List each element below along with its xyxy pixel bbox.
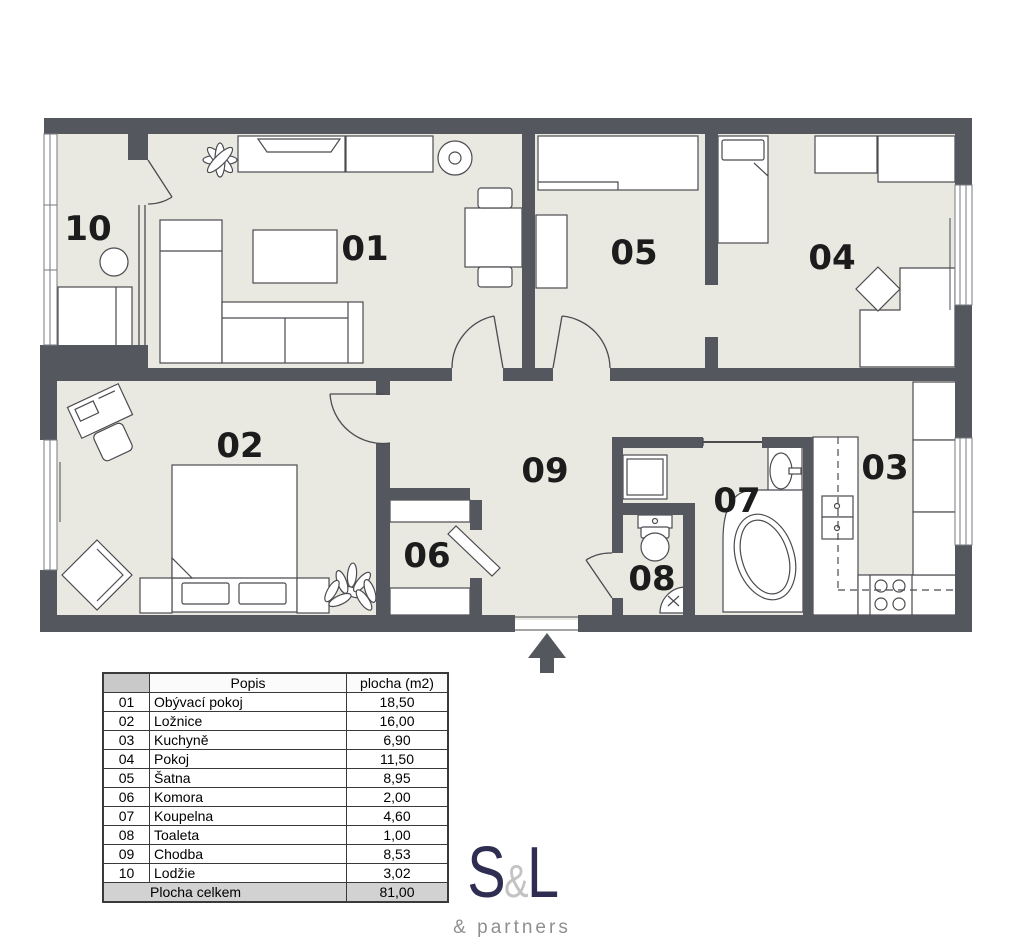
fridge-cabinet — [913, 382, 957, 440]
pillow — [239, 583, 286, 604]
window — [955, 185, 972, 305]
room-area: 2,00 — [347, 788, 448, 807]
nightstand — [140, 578, 172, 613]
room-label-08: 08 — [628, 559, 675, 599]
legend-row: 04 Pokoj 11,50 — [104, 750, 448, 769]
room-label-01: 01 — [341, 229, 388, 269]
room-name: Šatna — [150, 769, 347, 788]
room-name: Pokoj — [150, 750, 347, 769]
wardrobe — [536, 215, 567, 288]
legend-row: 03 Kuchyně 6,90 — [104, 731, 448, 750]
room-name: Obývací pokoj — [150, 693, 347, 712]
dining-table — [465, 208, 522, 267]
logo-tagline: & partners — [0, 917, 1024, 939]
pillow — [722, 140, 764, 160]
sofa — [222, 302, 363, 363]
logo-letter-s: S — [467, 833, 504, 913]
nightstand — [297, 578, 329, 613]
logo-letter-l: L — [527, 833, 557, 913]
room-label-09: 09 — [521, 451, 568, 491]
room-num: 06 — [104, 788, 150, 807]
legend-header-row: Popis plocha (m2) — [104, 674, 448, 693]
sofa-chaise — [160, 220, 222, 363]
legend-row: 06 Komora 2,00 — [104, 788, 448, 807]
room-num: 01 — [104, 693, 150, 712]
toilet-bowl — [641, 533, 669, 561]
legend-header-num — [104, 674, 150, 693]
room-num: 07 — [104, 807, 150, 826]
pillow — [182, 583, 229, 604]
chair — [478, 267, 512, 287]
room-num: 03 — [104, 731, 150, 750]
legend-header-plocha: plocha (m2) — [347, 674, 448, 693]
shelf — [878, 136, 955, 182]
room-label-05: 05 — [610, 233, 657, 273]
room-name: Koupelna — [150, 807, 347, 826]
room-num: 05 — [104, 769, 150, 788]
room-label-06: 06 — [403, 536, 450, 576]
stove — [870, 575, 912, 615]
window — [955, 438, 972, 545]
shelf — [390, 500, 470, 522]
legend-row: 07 Koupelna 4,60 — [104, 807, 448, 826]
loggia-table — [100, 248, 128, 276]
room-num: 04 — [104, 750, 150, 769]
company-logo: S&L & partners — [0, 838, 1024, 939]
legend-row: 01 Obývací pokoj 18,50 — [104, 693, 448, 712]
cabinet — [346, 136, 433, 172]
room-area: 16,00 — [347, 712, 448, 731]
legend-row: 05 Šatna 8,95 — [104, 769, 448, 788]
room-label-10: 10 — [64, 209, 111, 249]
room-label-02: 02 — [216, 426, 263, 466]
legend-header-popis: Popis — [150, 674, 347, 693]
floor-plan: 01 02 03 04 05 06 07 08 09 10 — [0, 0, 1024, 700]
logo-monogram: S&L — [467, 838, 557, 916]
entrance-arrow-icon — [528, 633, 566, 673]
chair — [478, 188, 512, 208]
room-name: Komora — [150, 788, 347, 807]
room-name: Kuchyně — [150, 731, 347, 750]
burner — [875, 598, 887, 610]
shelf — [815, 136, 877, 173]
kitchen-cabinet — [913, 440, 957, 512]
room-area: 4,60 — [347, 807, 448, 826]
room-area: 18,50 — [347, 693, 448, 712]
room-num: 02 — [104, 712, 150, 731]
room-name: Ložnice — [150, 712, 347, 731]
room-label-07: 07 — [713, 481, 760, 521]
shelf — [390, 588, 470, 615]
coffee-table — [253, 230, 337, 283]
room-label-03: 03 — [861, 448, 908, 488]
logo-ampersand: & — [504, 855, 527, 907]
loggia-bench — [58, 287, 132, 347]
burner — [893, 598, 905, 610]
room-label-04: 04 — [808, 238, 855, 278]
room-area: 11,50 — [347, 750, 448, 769]
legend-row: 02 Ložnice 16,00 — [104, 712, 448, 731]
room-area: 8,95 — [347, 769, 448, 788]
kitchen-cabinet — [913, 512, 957, 575]
room-area: 6,90 — [347, 731, 448, 750]
plant-icon — [203, 143, 237, 177]
tv — [258, 139, 340, 152]
